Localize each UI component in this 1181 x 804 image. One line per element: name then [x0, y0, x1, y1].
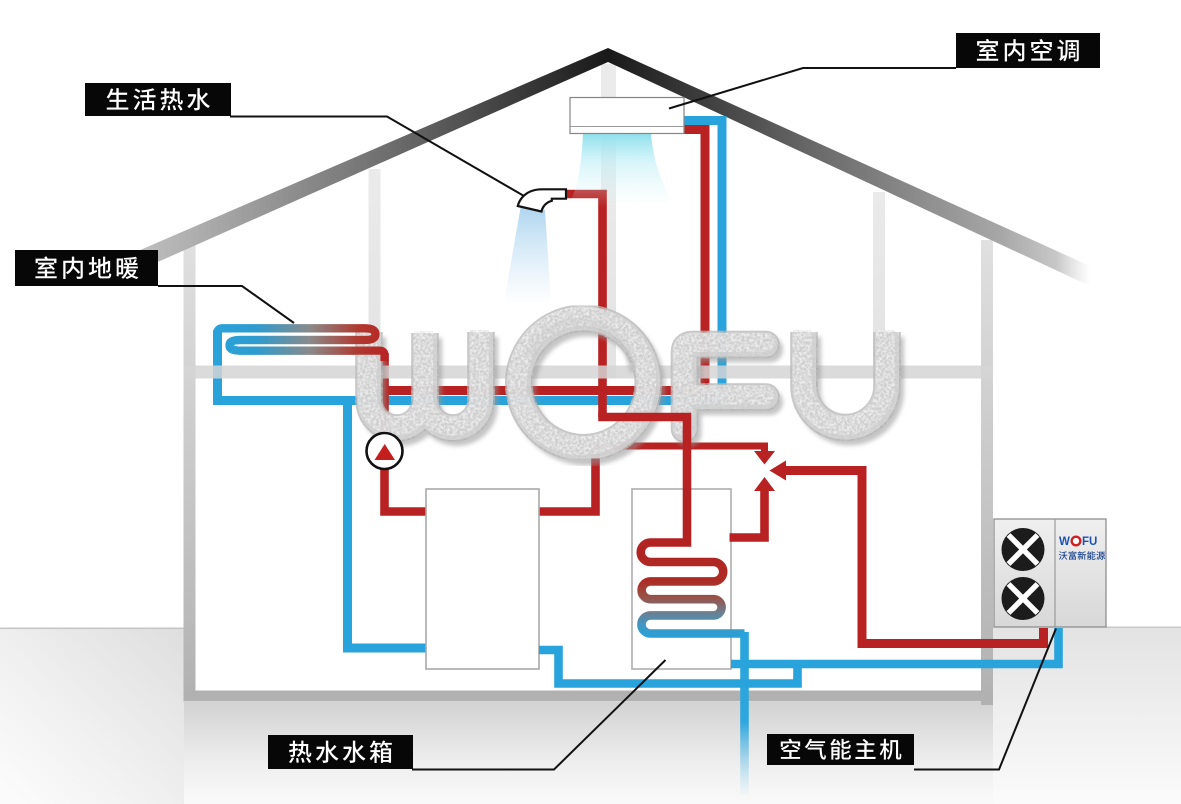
svg-text:W: W — [1059, 536, 1070, 548]
svg-text:FU: FU — [1082, 536, 1097, 548]
